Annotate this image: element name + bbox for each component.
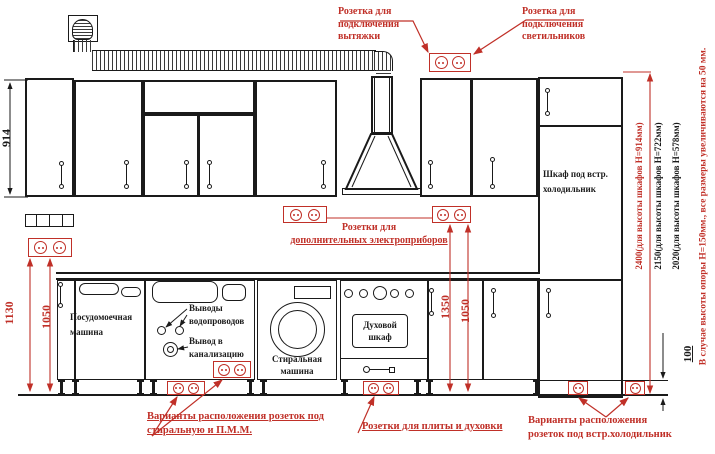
cabinet-leg bbox=[414, 380, 421, 395]
dim-1050-mid-label: 1050 bbox=[458, 291, 472, 331]
cabinet-handle bbox=[490, 158, 495, 188]
water-supply-label-line2: водопроводов bbox=[189, 315, 244, 328]
socket-box-fridge-1 bbox=[568, 381, 588, 395]
sewage-label-line2: канализацию bbox=[189, 348, 244, 361]
hood-flare bbox=[346, 134, 417, 189]
cabinet-leg bbox=[533, 380, 540, 395]
socket-icon bbox=[383, 383, 394, 394]
cabinet-handle bbox=[321, 161, 326, 188]
socket-icon bbox=[188, 383, 199, 394]
socket-icon bbox=[452, 56, 465, 69]
fridge-cabinet-label-line1: Шкаф под встр. bbox=[543, 167, 608, 182]
hood-socket-label-line1: Розетка для bbox=[338, 6, 399, 19]
socket-icon bbox=[34, 241, 47, 254]
socket-icon bbox=[308, 209, 320, 221]
socket-box-plinth-washer bbox=[167, 381, 205, 395]
oven-label-line1: Духовой bbox=[352, 319, 408, 331]
dim-914-label: 914 bbox=[0, 118, 13, 158]
sewage-point bbox=[163, 342, 178, 357]
support-height-note: В случае высоты опоры H=150мм., все разм… bbox=[698, 37, 711, 377]
dishwasher-label-line1: Посудомоечная bbox=[70, 310, 132, 325]
fridge-cabinet-divider bbox=[540, 279, 621, 281]
extra-appliance-label-line1: Розетки для bbox=[283, 222, 455, 235]
hood-flare-inner-line bbox=[388, 136, 411, 187]
hood-socket-label: Розетка для подключения вытяжки bbox=[338, 6, 399, 44]
socket-box-stove-oven bbox=[363, 381, 399, 395]
stove-oven-sockets-label: Розетки для плиты и духовки bbox=[362, 421, 503, 432]
socket-icon bbox=[435, 56, 448, 69]
dishwasher-label-line2: машина bbox=[70, 325, 132, 340]
socket-icon bbox=[573, 383, 584, 394]
stove-knob bbox=[390, 289, 399, 298]
dishwasher-panel-small bbox=[121, 287, 141, 297]
duct-elbow-right bbox=[374, 51, 393, 71]
washer-label-line2: стиральную и П.М.М. bbox=[147, 424, 324, 438]
fridge-sockets-label-line1: Варианты расположения bbox=[528, 414, 672, 428]
stove-knob bbox=[344, 289, 353, 298]
dishwasher-label: Посудомоечная машина bbox=[70, 310, 132, 340]
socket-icon bbox=[234, 364, 246, 376]
lights-socket-label-line2: подключения bbox=[522, 19, 585, 32]
socket-icon bbox=[630, 383, 641, 394]
upper-cabinet-tall-left bbox=[25, 78, 74, 197]
plate-rack-divider bbox=[36, 215, 37, 226]
cabinet-leg bbox=[72, 380, 79, 395]
stove-knob bbox=[359, 289, 368, 298]
washing-machine-drum-inner bbox=[278, 310, 317, 349]
cabinet-handle bbox=[58, 283, 63, 307]
cabinet-handle bbox=[491, 289, 496, 317]
socket-icon bbox=[290, 209, 302, 221]
fridge-cabinet-label: Шкаф под встр. холодильник bbox=[543, 167, 608, 197]
washing-machine-label-line2: машина bbox=[257, 365, 337, 377]
fridge-cabinet-divider bbox=[540, 125, 621, 127]
countertop bbox=[56, 272, 540, 280]
stove-knob-large bbox=[373, 286, 387, 300]
cabinet-leg bbox=[426, 380, 433, 395]
sink-bowl bbox=[152, 281, 218, 303]
washing-machine-label: Стиральная машина bbox=[257, 353, 337, 377]
sewage-label: Вывод в канализацию bbox=[189, 335, 244, 361]
socket-icon bbox=[218, 364, 230, 376]
cabinet-leg bbox=[341, 380, 348, 395]
socket-icon bbox=[368, 383, 379, 394]
lights-socket-label: Розетка для подключения светильников bbox=[522, 6, 585, 44]
washing-machine-panel bbox=[294, 286, 331, 299]
cabinet-handle bbox=[546, 289, 551, 317]
duct-elbow-left bbox=[73, 40, 92, 52]
cabinet-leg bbox=[137, 380, 144, 395]
washing-machine-label-line1: Стиральная bbox=[257, 353, 337, 365]
upper-cabinet-6 bbox=[471, 78, 538, 197]
socket-box-left-wall bbox=[28, 238, 72, 257]
water-supply-label: Выводы водопроводов bbox=[189, 302, 244, 328]
upper-cabinet-3-left-door bbox=[143, 114, 199, 197]
lights-socket-label-line1: Розетка для bbox=[522, 6, 585, 19]
base-cabinet-right-1 bbox=[428, 280, 483, 380]
cabinet-handle bbox=[59, 162, 64, 188]
dim-1050-left-label: 1050 bbox=[39, 297, 53, 337]
dim-1350-label: 1350 bbox=[438, 287, 452, 327]
vent-cap bbox=[72, 19, 93, 40]
hood-chimney-inner-line bbox=[389, 78, 390, 133]
drawer-handle bbox=[366, 366, 392, 372]
water-supply-label-line1: Выводы bbox=[189, 302, 244, 315]
washer-dishwasher-sockets-label: Варианты расположения розеток под стирал… bbox=[147, 410, 324, 437]
socket-icon bbox=[437, 209, 449, 221]
hood-socket-label-line2: подключения bbox=[338, 19, 399, 32]
plate-rack-divider bbox=[62, 215, 63, 226]
extra-appliance-sockets-label: Розетки для дополнительных электроприбор… bbox=[283, 222, 455, 247]
plate-rack-divider bbox=[49, 215, 50, 226]
dim-2150-label: 2150(для высоты шкафов H=722мм) bbox=[652, 111, 664, 281]
cabinet-handle bbox=[545, 89, 550, 115]
socket-box-cabinet-washer bbox=[213, 361, 251, 378]
kitchen-wiring-diagram: Розетка для подключения вытяжки Розетка … bbox=[0, 0, 715, 454]
water-supply-point bbox=[157, 326, 166, 335]
socket-box-hood-lights bbox=[429, 53, 471, 72]
lights-socket-label-line3: светильников bbox=[522, 31, 585, 44]
socket-icon bbox=[173, 383, 184, 394]
upper-cabinet-2 bbox=[74, 80, 143, 197]
cabinet-handle bbox=[429, 289, 434, 315]
water-supply-point bbox=[175, 326, 184, 335]
socket-box-backsplash-left bbox=[283, 206, 327, 223]
cabinet-handle bbox=[124, 161, 129, 188]
fridge-sockets-label-line2: розеток под встр.холодильник bbox=[528, 428, 672, 442]
cabinet-handle bbox=[207, 161, 212, 188]
fridge-sockets-label: Варианты расположения розеток под встр.х… bbox=[528, 414, 672, 442]
stove-knob bbox=[405, 289, 414, 298]
fridge-cabinet-label-line2: холодильник bbox=[543, 182, 608, 197]
sink-drainer bbox=[222, 284, 246, 301]
extra-appliance-label-line2: дополнительных электроприборов bbox=[283, 235, 455, 248]
oven-label-line2: шкаф bbox=[352, 331, 408, 343]
hood-chimney-inner-line bbox=[374, 78, 375, 133]
socket-box-backsplash-right bbox=[432, 206, 471, 223]
sewage-label-line1: Вывод в bbox=[189, 335, 244, 348]
cabinet-leg bbox=[260, 380, 267, 395]
stove-drawer-divider bbox=[340, 358, 428, 359]
washer-label-line1: Варианты расположения розеток под bbox=[147, 410, 324, 424]
cabinet-leg bbox=[58, 380, 65, 395]
upper-cabinet-3-top-door bbox=[143, 80, 255, 114]
dim-100-label: 100 bbox=[681, 334, 695, 374]
duct-run bbox=[92, 50, 376, 71]
hood-flare-inner-line bbox=[352, 136, 375, 187]
hood-socket-label-line3: вытяжки bbox=[338, 31, 399, 44]
hood-base bbox=[342, 188, 421, 195]
socket-icon bbox=[454, 209, 466, 221]
socket-icon bbox=[53, 241, 66, 254]
dishwasher-panel bbox=[79, 283, 119, 295]
cabinet-leg bbox=[247, 380, 254, 395]
dim-2400-label: 2400(для высоты шкафов H=914мм) bbox=[633, 111, 645, 281]
oven-label: Духовой шкаф bbox=[352, 319, 408, 343]
dim-1130-label: 1130 bbox=[2, 293, 16, 333]
socket-box-fridge-2 bbox=[625, 381, 645, 395]
cabinet-handle bbox=[428, 161, 433, 188]
cabinet-handle bbox=[184, 161, 189, 188]
dim-2020-label: 2020(для высоты шкафов H=578мм) bbox=[670, 111, 682, 281]
cabinet-leg bbox=[150, 380, 157, 395]
